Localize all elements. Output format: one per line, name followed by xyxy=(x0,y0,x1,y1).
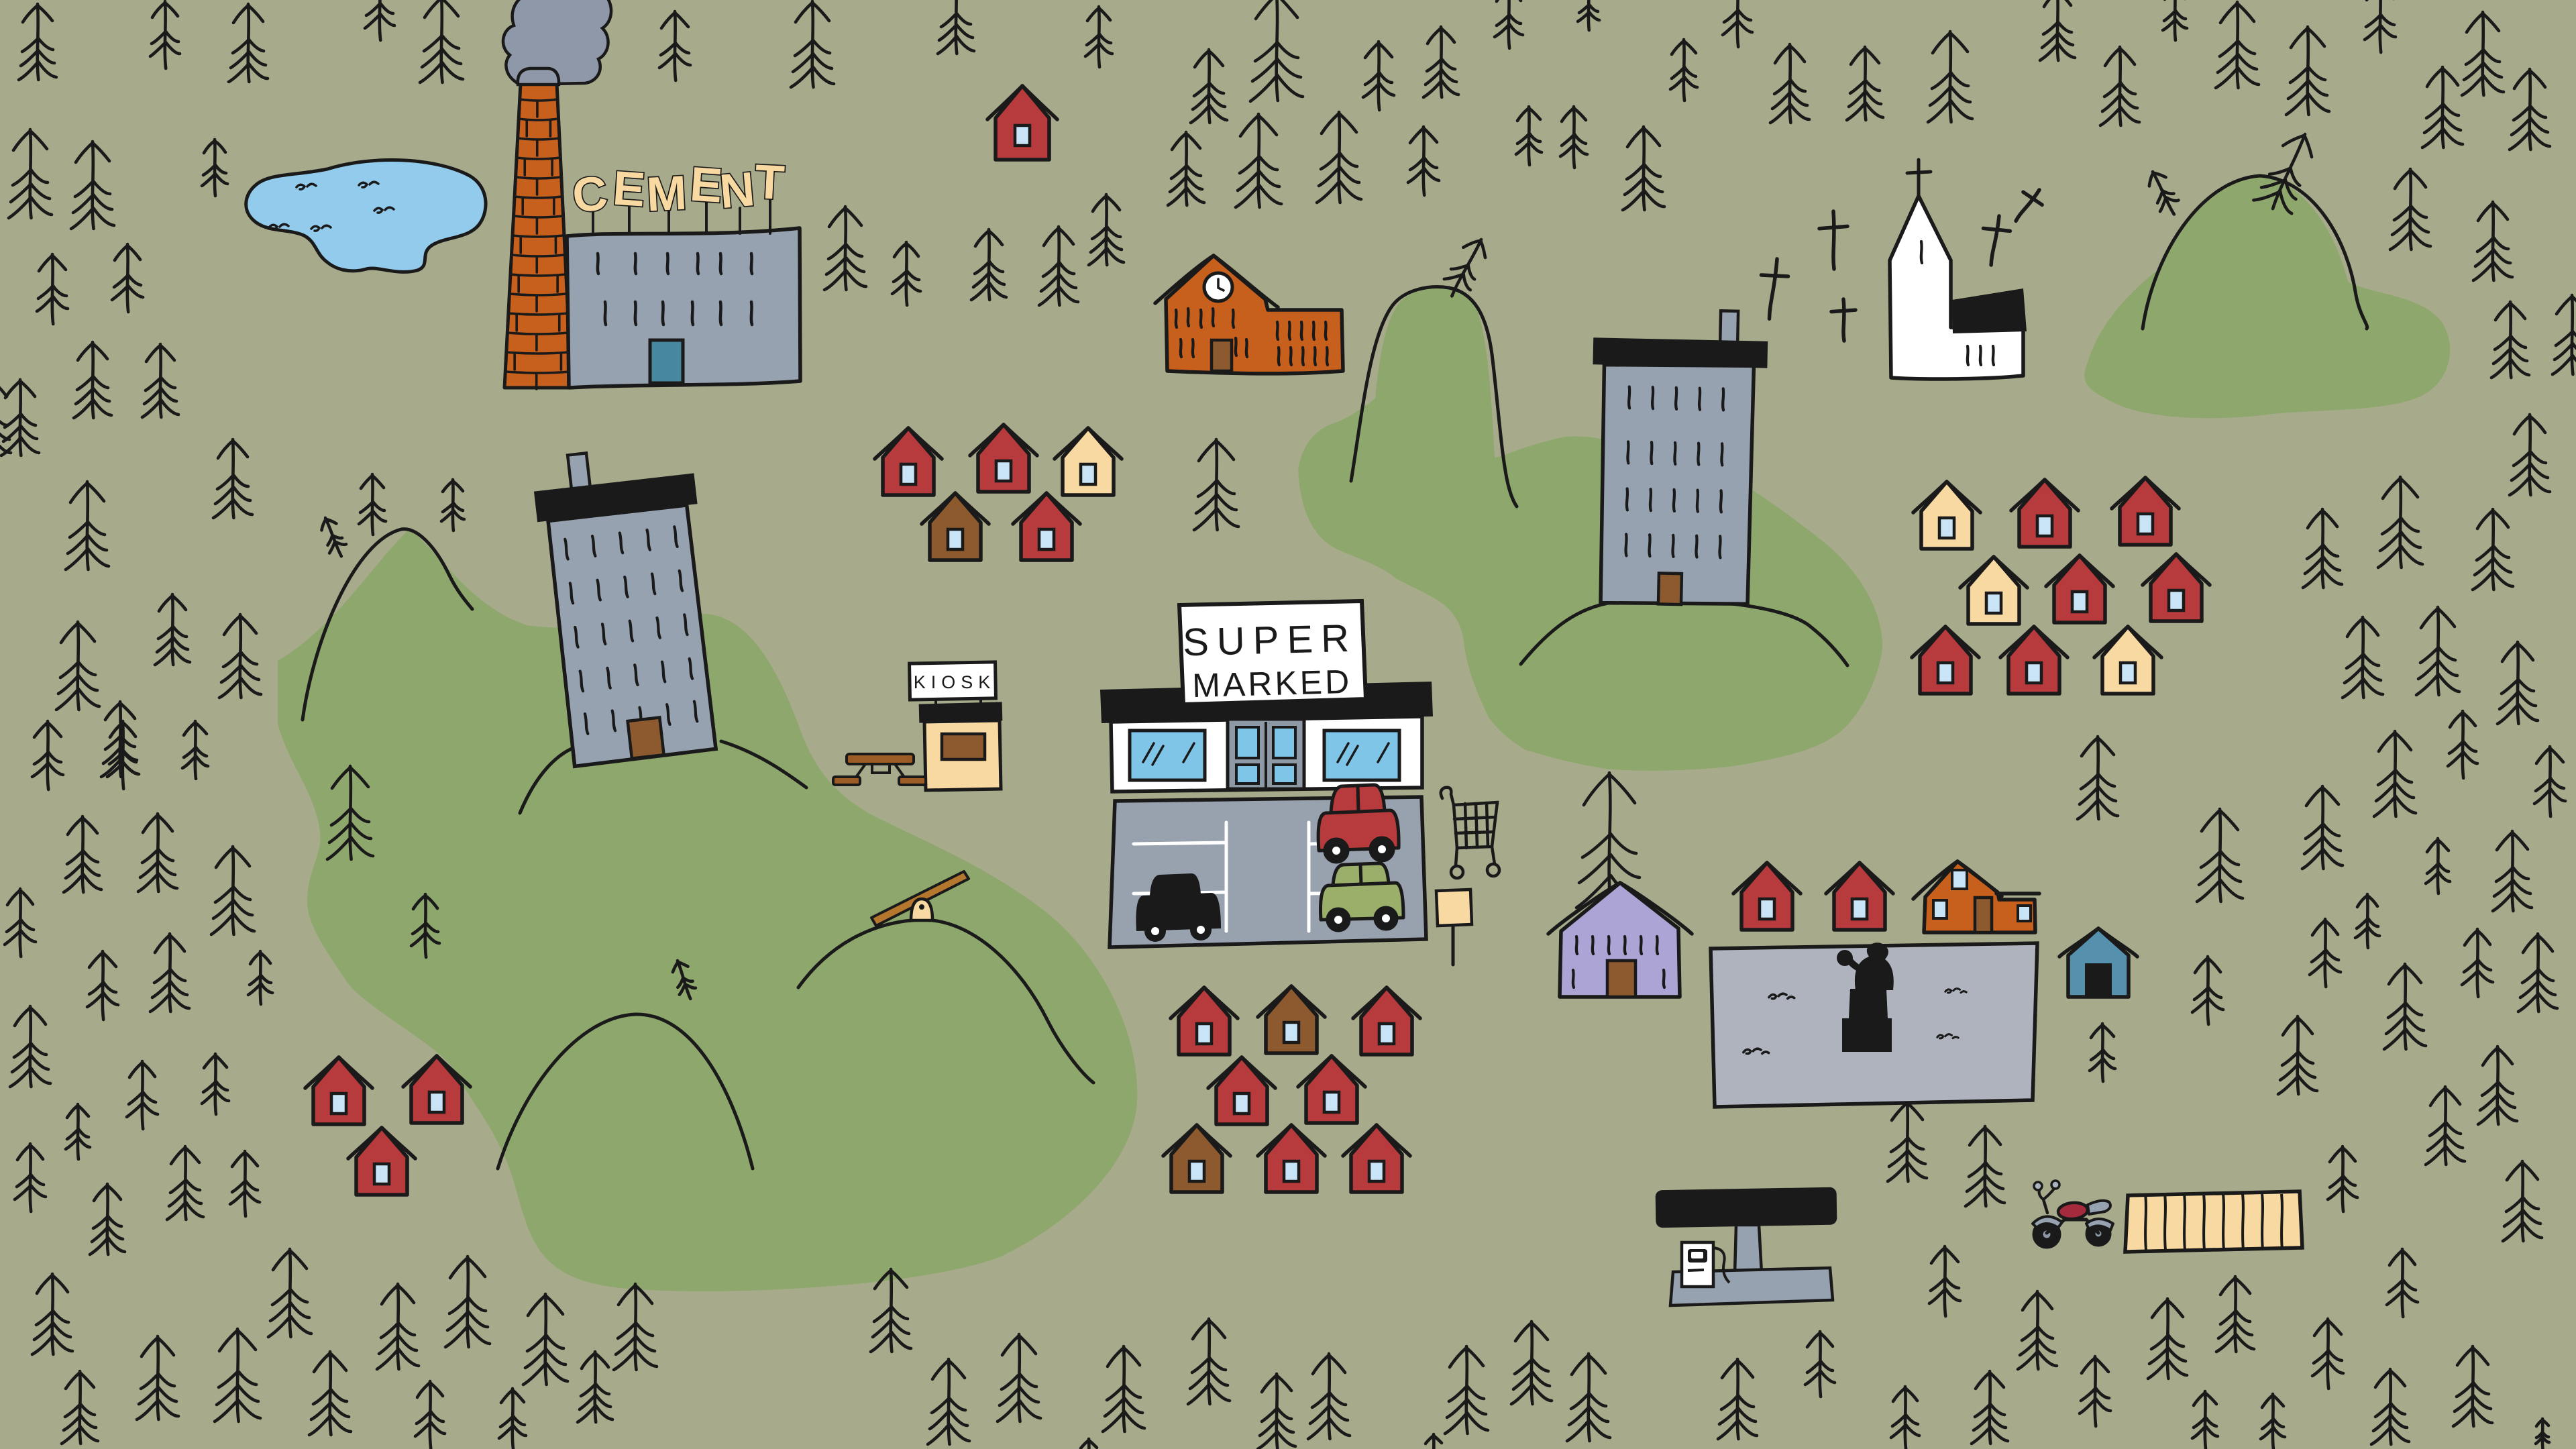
svg-text:MARKED: MARKED xyxy=(1192,663,1352,704)
svg-text:M: M xyxy=(645,166,688,222)
svg-text:N: N xyxy=(718,162,757,219)
svg-text:C: C xyxy=(570,166,610,223)
svg-text:SUPER: SUPER xyxy=(1182,616,1357,665)
svg-text:T: T xyxy=(753,155,786,210)
svg-text:KIOSK: KIOSK xyxy=(914,672,996,692)
svg-text:E: E xyxy=(611,161,647,217)
